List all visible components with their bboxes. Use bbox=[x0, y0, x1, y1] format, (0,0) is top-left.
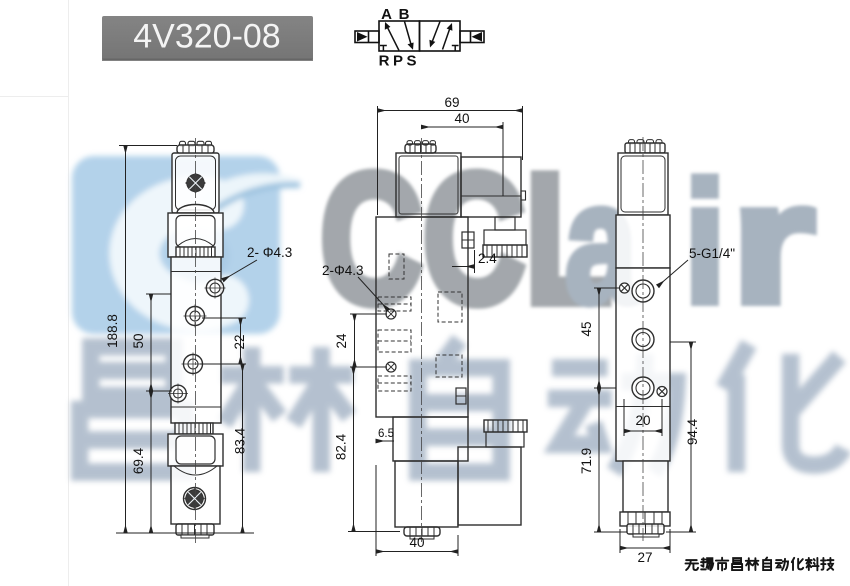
svg-text:22: 22 bbox=[232, 334, 247, 349]
svg-text:P: P bbox=[393, 53, 403, 70]
svg-text:S: S bbox=[406, 53, 416, 70]
svg-text:2-Φ4.3: 2-Φ4.3 bbox=[322, 263, 364, 278]
svg-text:40: 40 bbox=[454, 111, 469, 126]
svg-text:83.4: 83.4 bbox=[233, 427, 248, 454]
svg-text:188.8: 188.8 bbox=[105, 314, 120, 348]
svg-text:20: 20 bbox=[635, 413, 650, 428]
svg-text:71.9: 71.9 bbox=[579, 448, 594, 474]
svg-text:50: 50 bbox=[131, 333, 146, 348]
svg-text:B: B bbox=[399, 6, 410, 23]
svg-text:R: R bbox=[379, 53, 390, 70]
svg-text:45: 45 bbox=[579, 321, 594, 336]
svg-text:5-G1/4": 5-G1/4" bbox=[689, 246, 735, 261]
svg-text:4V320-08: 4V320-08 bbox=[133, 18, 280, 56]
svg-text:69.4: 69.4 bbox=[131, 447, 146, 474]
svg-text:i: i bbox=[684, 147, 726, 339]
svg-text:82.4: 82.4 bbox=[334, 433, 349, 460]
svg-text:A: A bbox=[381, 6, 392, 23]
svg-text:2.4: 2.4 bbox=[478, 251, 497, 266]
svg-text:94.4: 94.4 bbox=[685, 418, 700, 445]
svg-text:69: 69 bbox=[444, 95, 459, 110]
svg-text:40: 40 bbox=[409, 535, 424, 550]
svg-text:6.5: 6.5 bbox=[378, 428, 394, 440]
svg-text:27: 27 bbox=[637, 550, 652, 565]
svg-text:24: 24 bbox=[334, 333, 349, 349]
svg-text:r: r bbox=[731, 147, 815, 339]
svg-text:2- Φ4.3: 2- Φ4.3 bbox=[247, 245, 292, 260]
